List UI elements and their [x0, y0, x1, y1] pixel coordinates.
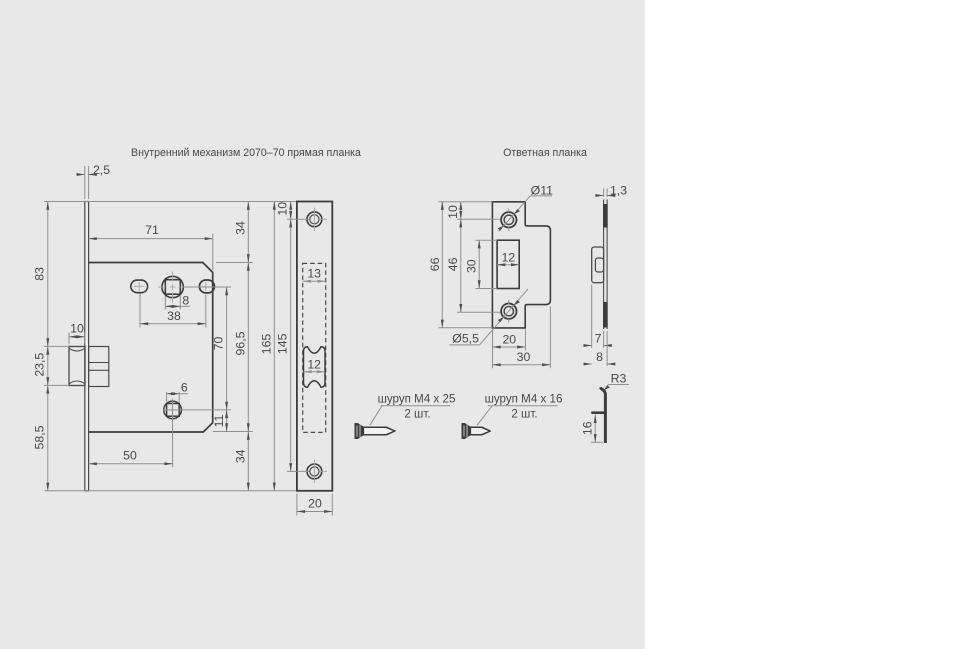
svg-text:10: 10 — [276, 202, 290, 216]
svg-text:96,5: 96,5 — [233, 331, 247, 355]
svg-text:2 шт.: 2 шт. — [404, 407, 430, 420]
svg-text:66: 66 — [428, 257, 442, 271]
svg-text:1,3: 1,3 — [610, 183, 627, 197]
svg-text:Ответная планка: Ответная планка — [503, 147, 587, 159]
svg-text:16: 16 — [580, 421, 594, 435]
svg-text:2,5: 2,5 — [93, 163, 110, 177]
svg-text:46: 46 — [446, 257, 460, 271]
svg-text:20: 20 — [502, 332, 516, 346]
svg-text:30: 30 — [465, 259, 479, 273]
svg-text:10: 10 — [446, 205, 460, 219]
svg-text:30: 30 — [517, 350, 531, 364]
svg-text:13: 13 — [307, 267, 321, 281]
svg-text:23,5: 23,5 — [33, 353, 47, 377]
svg-text:34: 34 — [233, 221, 247, 235]
svg-text:2 шт.: 2 шт. — [511, 407, 537, 420]
svg-text:12: 12 — [307, 358, 321, 372]
svg-text:38: 38 — [167, 309, 181, 323]
svg-text:34: 34 — [233, 449, 247, 463]
svg-text:8: 8 — [182, 293, 189, 307]
svg-text:Ø11: Ø11 — [531, 183, 553, 197]
svg-text:шуруп M4 x 25: шуруп M4 x 25 — [378, 392, 456, 405]
svg-text:70: 70 — [212, 337, 226, 351]
svg-text:R3: R3 — [611, 371, 627, 385]
svg-text:58,5: 58,5 — [33, 425, 47, 449]
svg-text:145: 145 — [276, 333, 290, 354]
svg-text:165: 165 — [259, 334, 273, 355]
svg-text:Ø5,5: Ø5,5 — [452, 331, 479, 345]
svg-text:20: 20 — [308, 497, 322, 511]
svg-text:Внутренний механизм 2070–70 пр: Внутренний механизм 2070–70 прямая планк… — [131, 147, 361, 159]
svg-text:шуруп M4 x 16: шуруп M4 x 16 — [485, 392, 563, 405]
svg-text:50: 50 — [123, 448, 137, 462]
svg-text:71: 71 — [145, 223, 159, 237]
svg-text:11: 11 — [212, 414, 226, 427]
svg-text:8: 8 — [596, 350, 603, 364]
svg-text:6: 6 — [181, 381, 188, 395]
svg-text:10: 10 — [70, 321, 84, 335]
svg-text:83: 83 — [33, 267, 47, 281]
svg-text:7: 7 — [595, 331, 602, 345]
svg-text:12: 12 — [501, 251, 515, 265]
